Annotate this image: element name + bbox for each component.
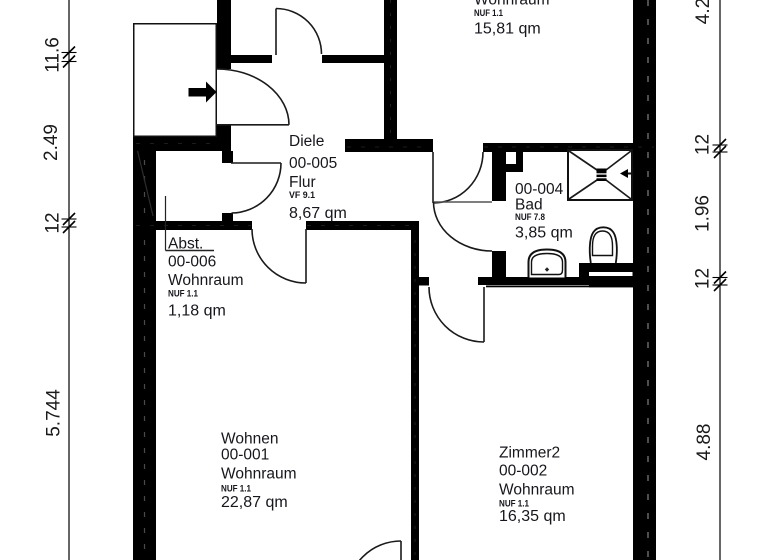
svg-text:Abst.: Abst. xyxy=(168,236,203,253)
svg-text:Wohnen: Wohnen xyxy=(221,431,278,448)
svg-text:00-006: 00-006 xyxy=(168,254,216,271)
svg-text:Bad: Bad xyxy=(515,197,543,214)
svg-text:12: 12 xyxy=(43,212,64,233)
svg-text:11.6: 11.6 xyxy=(43,37,64,73)
svg-text:00-005: 00-005 xyxy=(289,155,337,172)
svg-text:Wohnraum: Wohnraum xyxy=(168,272,244,289)
svg-text:Diele: Diele xyxy=(289,133,324,150)
svg-text:12: 12 xyxy=(693,268,714,289)
svg-text:NUF 1.1: NUF 1.1 xyxy=(221,484,251,494)
svg-text:5.744: 5.744 xyxy=(44,389,65,437)
svg-text:NUF 7.8: NUF 7.8 xyxy=(515,212,545,222)
svg-text:NUF 1.1: NUF 1.1 xyxy=(474,8,503,18)
svg-text:Wohnraum: Wohnraum xyxy=(221,466,297,483)
svg-text:16,35 qm: 16,35 qm xyxy=(499,508,566,525)
svg-text:NUF 1.1: NUF 1.1 xyxy=(499,499,529,509)
svg-text:00-004: 00-004 xyxy=(515,181,564,198)
svg-text:1,18 qm: 1,18 qm xyxy=(168,303,226,320)
svg-text:4.2: 4.2 xyxy=(693,0,714,24)
svg-text:1.96: 1.96 xyxy=(693,195,714,232)
svg-text:3,85 qm: 3,85 qm xyxy=(515,225,573,242)
svg-text:NUF 1.1: NUF 1.1 xyxy=(168,289,198,299)
svg-text:Flur: Flur xyxy=(289,174,316,191)
svg-text:Zimmer2: Zimmer2 xyxy=(499,445,560,462)
svg-text:VF 9.1: VF 9.1 xyxy=(289,190,315,200)
svg-text:2.49: 2.49 xyxy=(41,124,62,161)
svg-text:00-001: 00-001 xyxy=(221,447,269,464)
svg-text:8,67 qm: 8,67 qm xyxy=(289,205,347,222)
svg-text:12: 12 xyxy=(693,134,714,155)
svg-text:4.88: 4.88 xyxy=(694,424,715,461)
svg-text:15,81 qm: 15,81 qm xyxy=(474,21,541,38)
svg-text:00-002: 00-002 xyxy=(499,463,547,480)
svg-text:22,87 qm: 22,87 qm xyxy=(221,494,288,511)
svg-text:Wohnraum: Wohnraum xyxy=(499,482,575,499)
